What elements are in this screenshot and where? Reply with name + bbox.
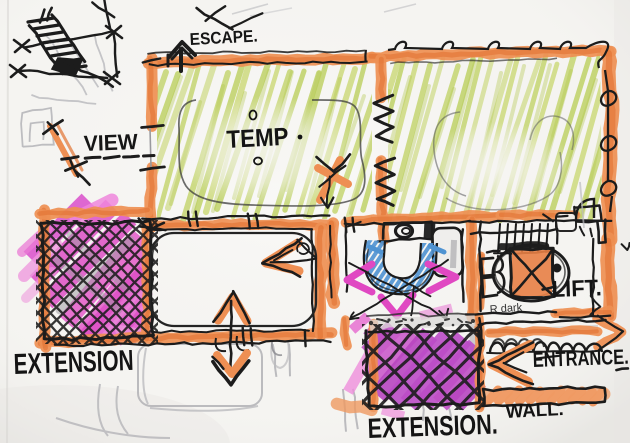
svg-text:ESCAPE.: ESCAPE. <box>189 26 258 49</box>
svg-text:ENTRANCE.: ENTRANCE. <box>532 346 629 372</box>
svg-text:EXTENSION.: EXTENSION. <box>367 408 498 443</box>
svg-text:TEMP: TEMP <box>226 123 289 154</box>
svg-text:WALL.: WALL. <box>505 399 564 423</box>
svg-text:EXTENSION: EXTENSION <box>13 345 134 381</box>
svg-text:VIEW: VIEW <box>83 129 138 156</box>
